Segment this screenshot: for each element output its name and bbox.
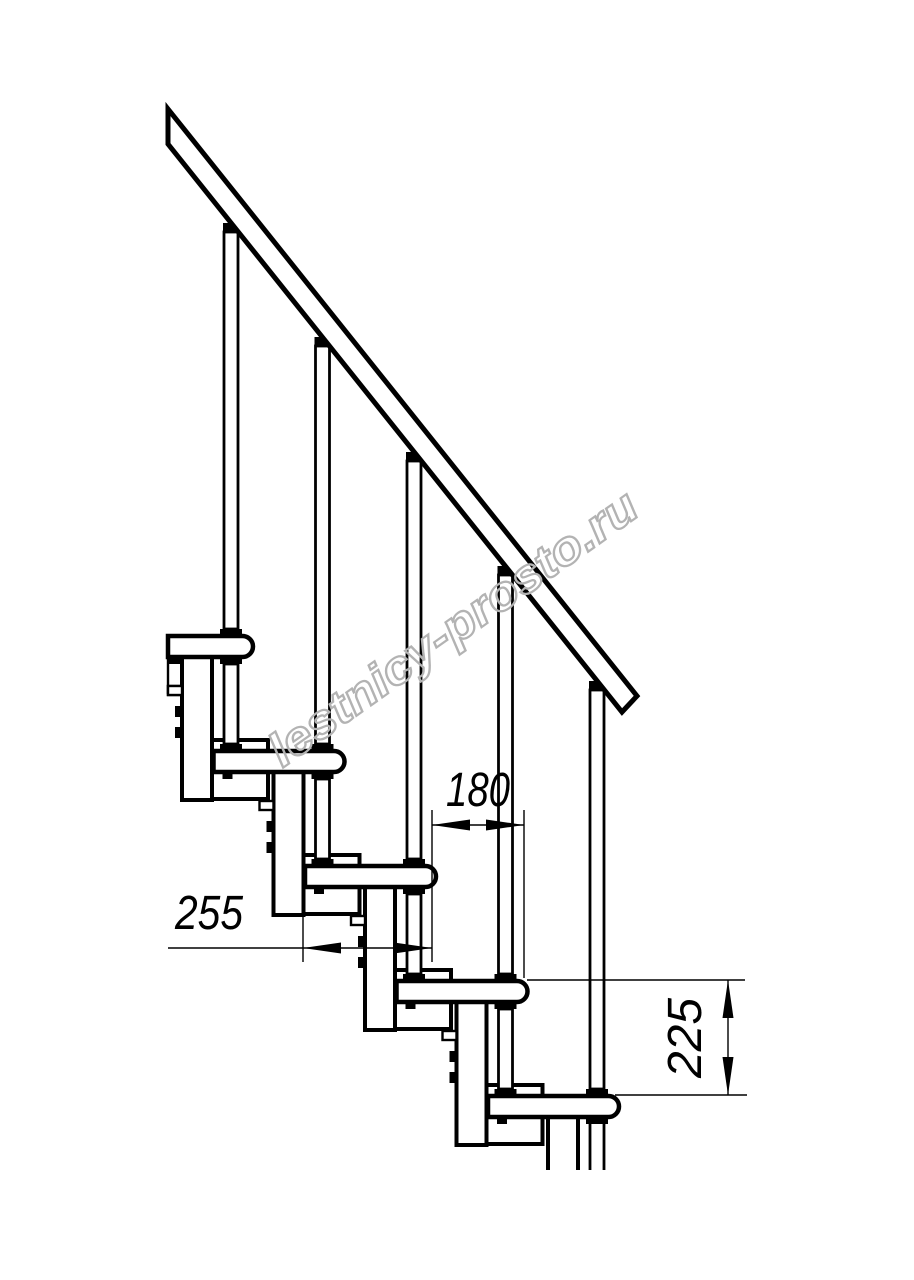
baluster-rod [590,690,604,1089]
modular-staircase-side-view: 180 255 225 lestnicy-prosto.ru [0,0,914,1280]
bolt-tab-icon [358,936,365,947]
bolt-tab-icon [450,1051,457,1062]
support-column [457,1002,487,1145]
bolt-icon [223,772,233,779]
tread-3 [305,866,436,887]
bolt-icon [168,658,180,664]
bolt-tab-icon [450,1072,457,1083]
support-column [182,657,212,800]
bolt-tab-icon [267,821,274,832]
tread-4 [397,981,528,1002]
arrowhead [723,980,734,1018]
tread-5 [488,1096,619,1117]
bolt-tab-icon [267,842,274,853]
rod-cap [586,1117,608,1124]
connecting-rod [224,664,238,744]
arrowhead [303,943,341,954]
bolt-tab-icon [358,957,365,968]
bracket-tab [168,686,182,695]
connecting-rod [499,1009,513,1089]
dimension-tread-depth-label: 255 [174,887,243,940]
dimension-step-height-label: 225 [659,998,712,1079]
connecting-rod [407,894,421,974]
support-column [274,772,304,915]
baluster-rod [224,232,238,629]
bolt-icon [406,1002,416,1009]
dimension-step-going-label: 180 [446,764,510,817]
connecting-rod [316,779,330,859]
tread-1 [168,636,253,657]
bracket-tab [443,1031,457,1040]
bolt-tab-icon [175,727,182,738]
baluster-tread-cap [220,629,242,636]
bracket-tab [260,801,274,810]
staircase-drawing-page: 180 255 225 lestnicy-prosto.ru [0,0,914,1280]
support-column [365,887,395,1030]
bolt-icon [314,887,324,894]
bolt-tab-icon [175,706,182,717]
arrowhead [723,1057,734,1095]
baluster-tread-cap [495,974,517,981]
arrowhead [432,820,470,831]
bracket-tab [351,916,365,925]
baluster-tread-cap [403,859,425,866]
bolt-icon [497,1117,507,1124]
baluster-tread-cap [586,1089,608,1096]
